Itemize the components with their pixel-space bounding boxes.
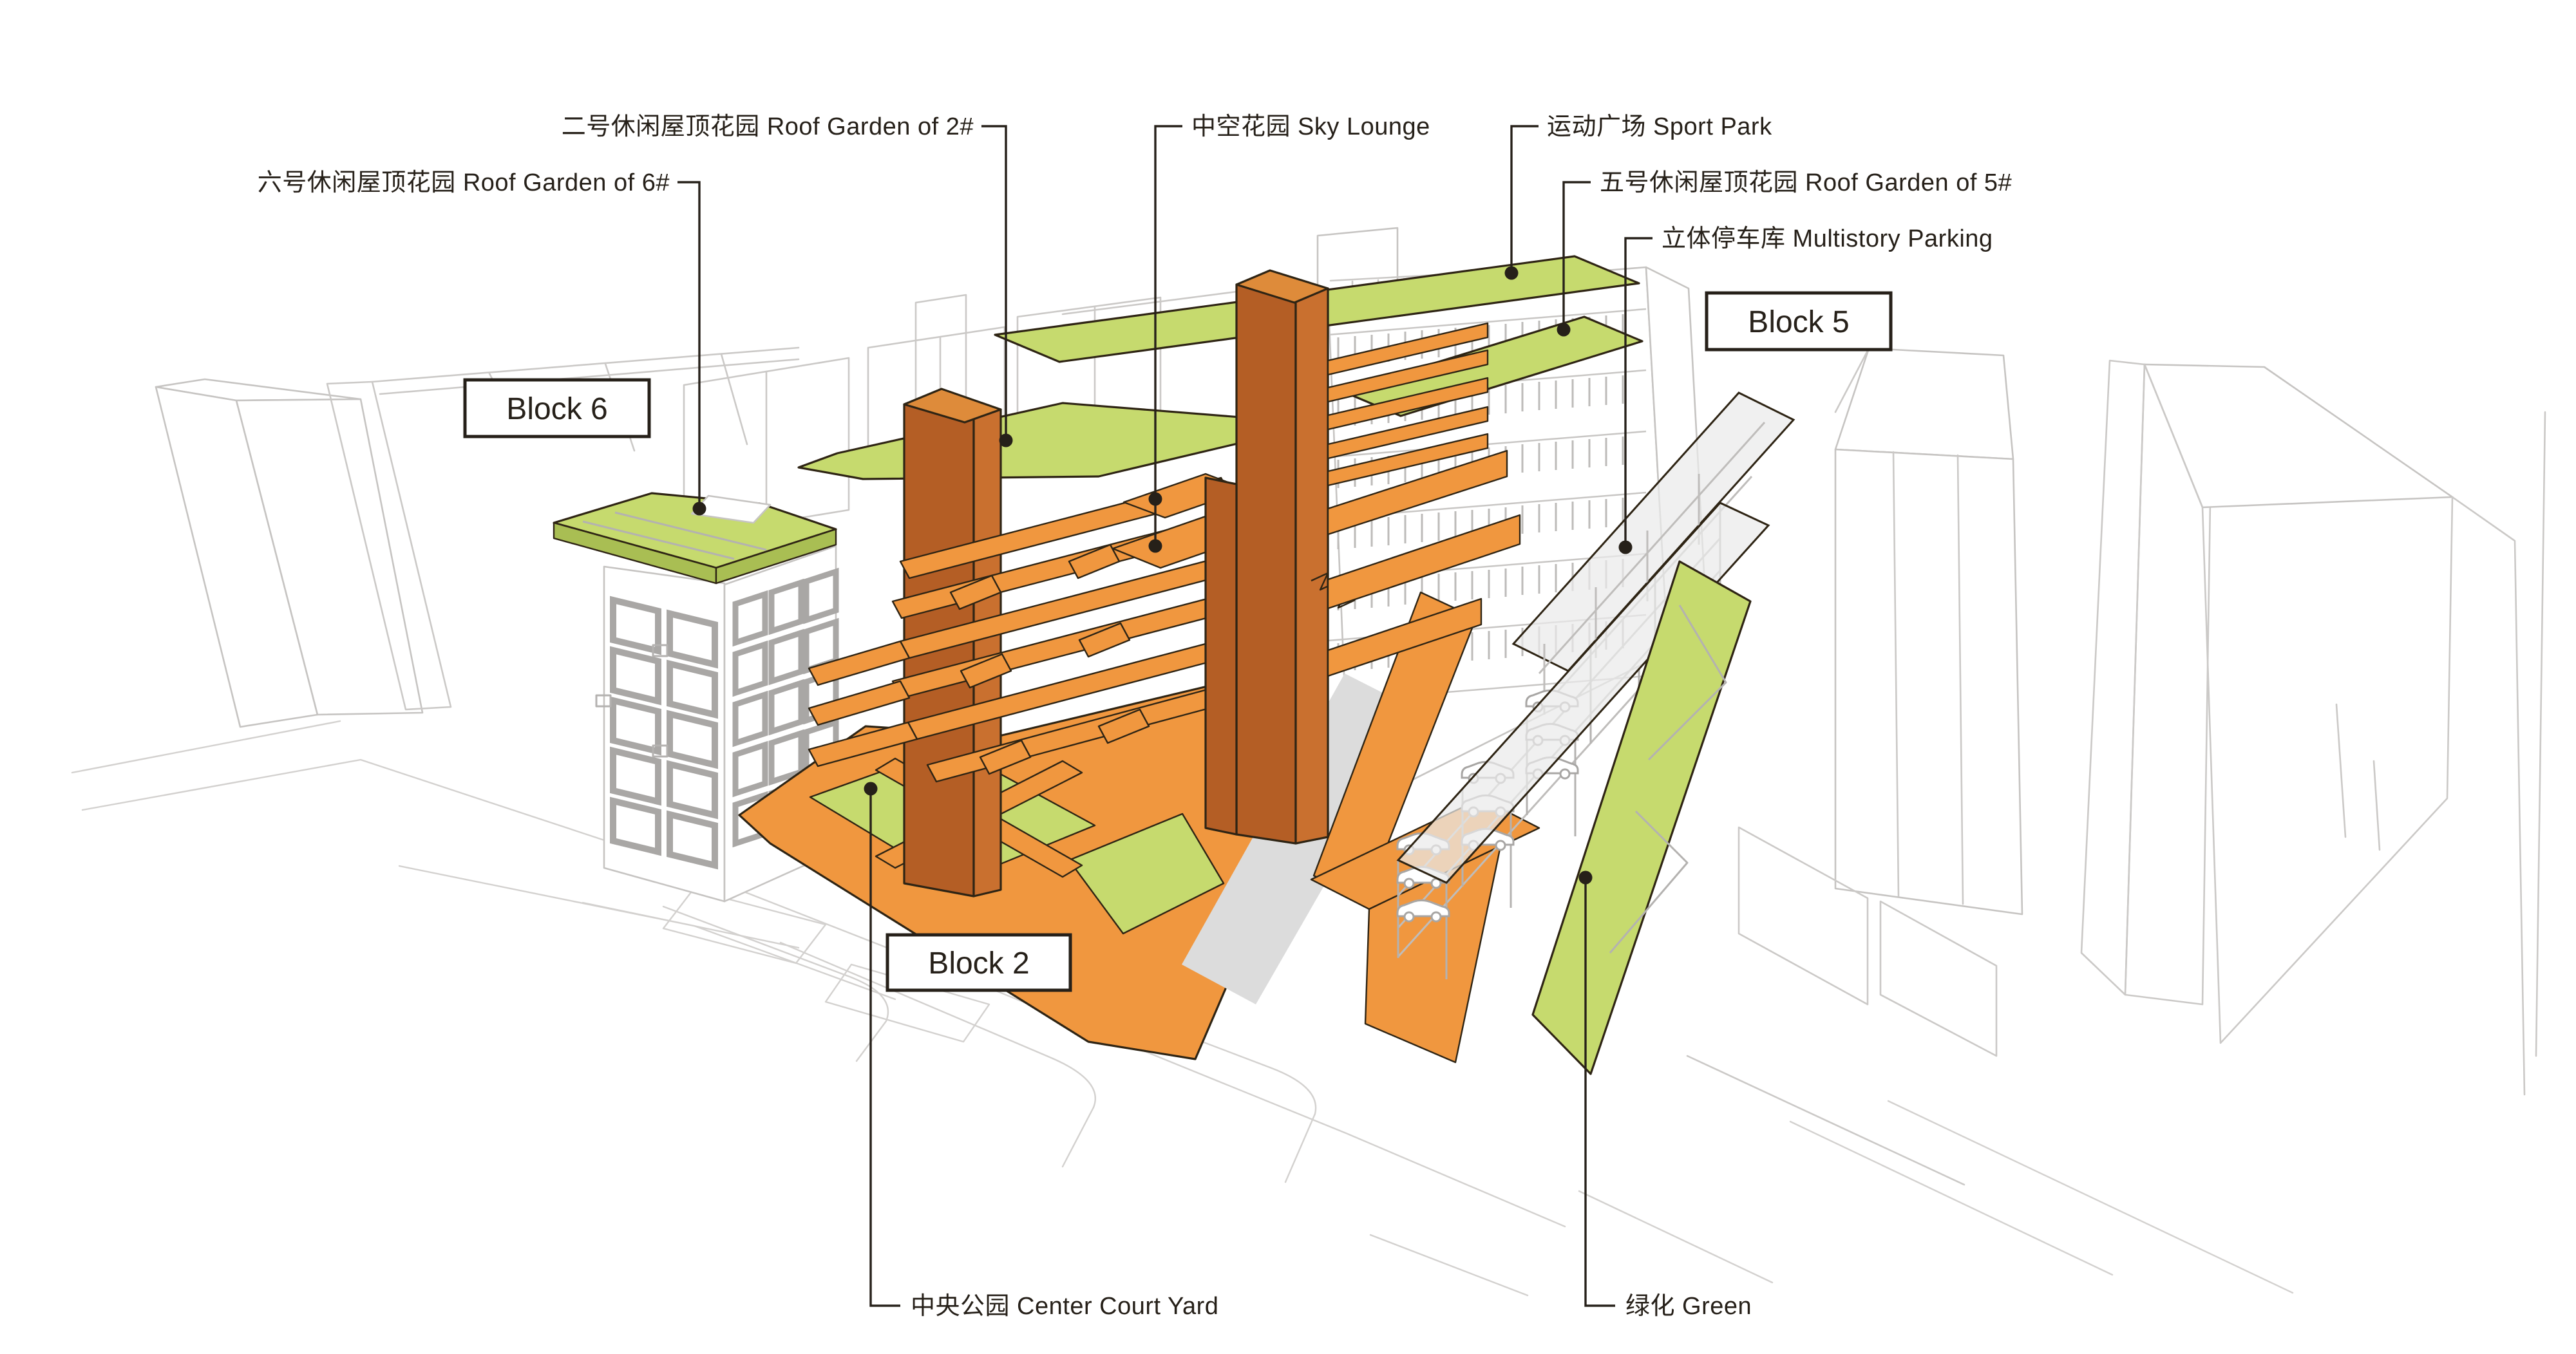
label-sport-park: 运动广场 Sport Park	[1547, 113, 1772, 140]
dot-roof-garden-2	[999, 434, 1013, 447]
label-roof-garden-5: 五号休闲屋顶花园 Roof Garden of 5#	[1600, 169, 2012, 196]
leader-roof-garden-2	[981, 126, 1006, 440]
dot-roof-garden-5	[1557, 323, 1571, 337]
dot-sport-park	[1505, 267, 1519, 280]
dot-parking	[1619, 541, 1633, 554]
block5-tag: Block 5	[1748, 305, 1849, 339]
label-sky-lounge: 中空花园 Sky Lounge	[1191, 113, 1430, 140]
axonometric-diagram: 二号休闲屋顶花园 Roof Garden of 2# 中空花园 Sky Loun…	[0, 0, 2576, 1354]
right-background-towers	[1835, 348, 2545, 1095]
diagram-page: 二号休闲屋顶花园 Roof Garden of 2# 中空花园 Sky Loun…	[0, 0, 2576, 1354]
dot-green	[1579, 871, 1593, 885]
label-roof-garden-6: 六号休闲屋顶花园 Roof Garden of 6#	[258, 169, 670, 196]
block6-tag: Block 6	[506, 392, 607, 426]
dot-center-court	[864, 782, 878, 796]
label-parking: 立体停车库 Multistory Parking	[1662, 225, 1993, 252]
dot-roof-garden-6	[693, 502, 706, 516]
label-green: 绿化 Green	[1625, 1293, 1752, 1320]
label-roof-garden-2: 二号休闲屋顶花园 Roof Garden of 2#	[562, 113, 974, 140]
dot-sky-lounge-lower	[1149, 540, 1162, 553]
label-center-court: 中央公园 Center Court Yard	[911, 1293, 1218, 1320]
leader-sport-park	[1511, 126, 1539, 273]
block2-tag: Block 2	[928, 946, 1029, 981]
dot-sky-lounge-upper	[1149, 493, 1162, 506]
leader-roof-garden-6	[677, 182, 699, 505]
